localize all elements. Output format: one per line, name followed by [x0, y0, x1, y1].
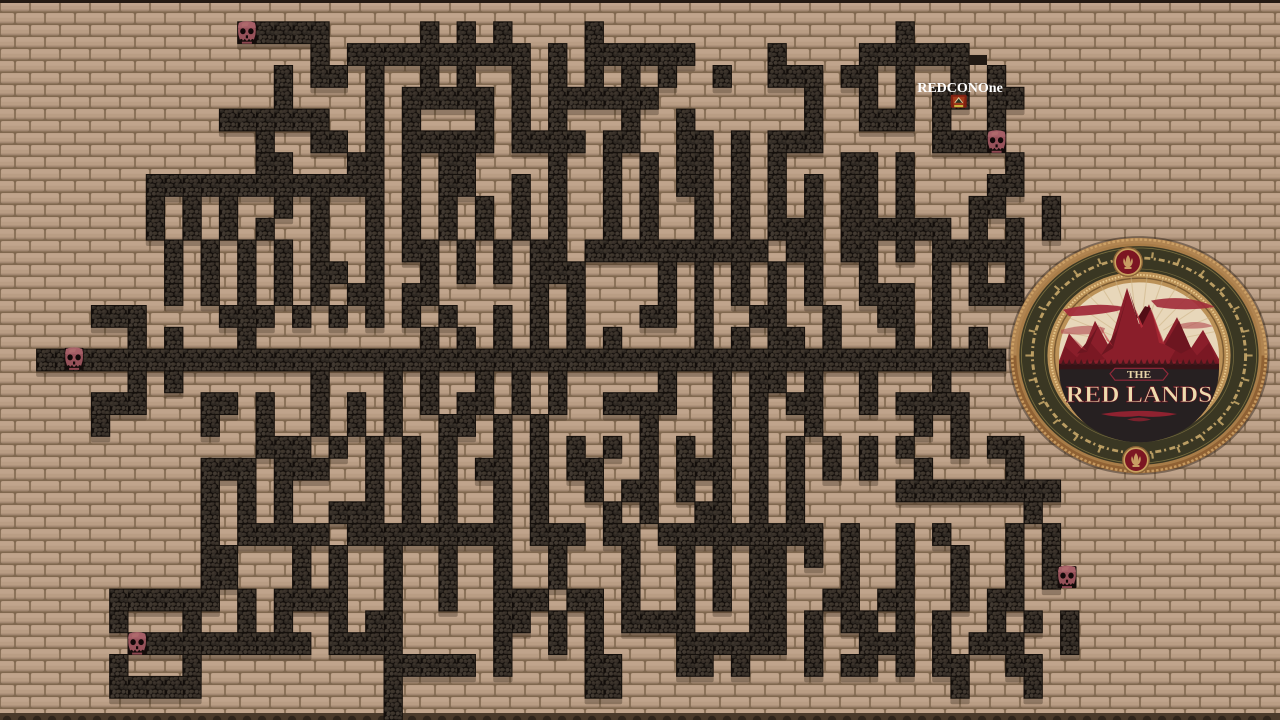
svg-text:REDCONOne: REDCONOne — [917, 81, 1003, 96]
svg-text:RED LANDS: RED LANDS — [1066, 382, 1213, 408]
svg-text:THE: THE — [1127, 369, 1151, 380]
